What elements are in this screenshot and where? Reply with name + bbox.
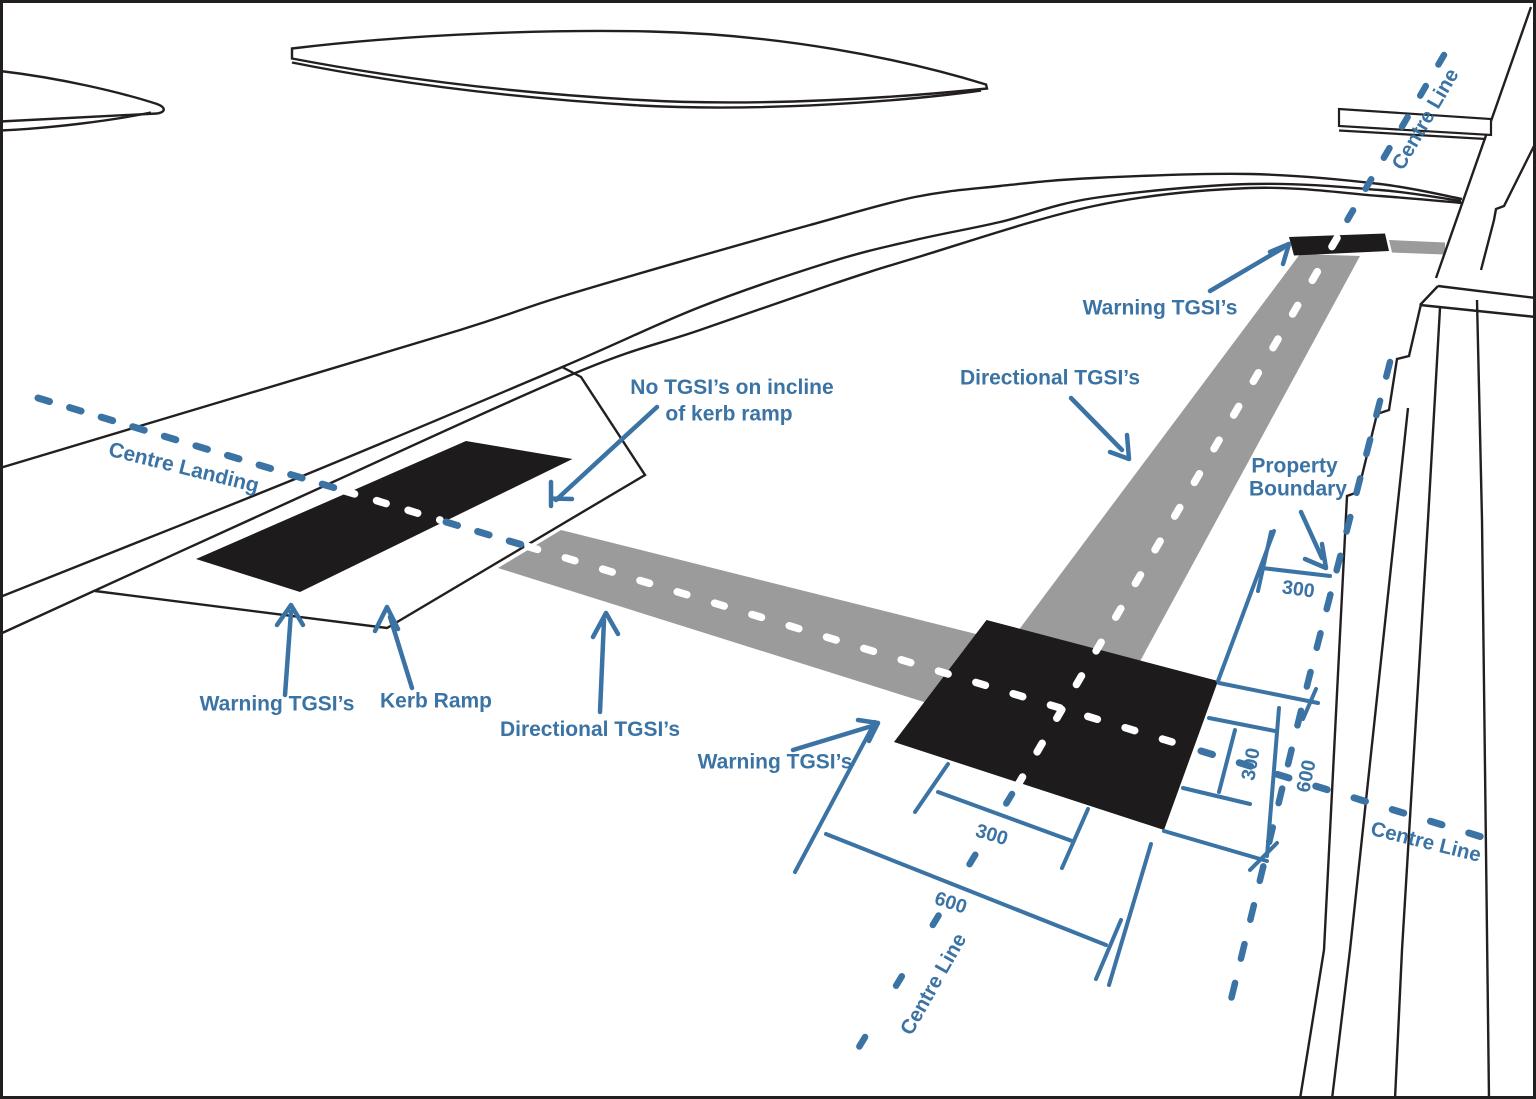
svg-text:Property: Property	[1251, 455, 1338, 478]
svg-text:Directional TGSI’s: Directional TGSI’s	[960, 367, 1140, 390]
svg-text:Warning TGSI’s: Warning TGSI’s	[200, 693, 355, 716]
svg-text:300: 300	[1281, 576, 1316, 602]
svg-text:No TGSI’s on incline: No TGSI’s on incline	[630, 376, 833, 399]
svg-text:Boundary: Boundary	[1249, 478, 1347, 501]
svg-text:Kerb Ramp: Kerb Ramp	[380, 690, 492, 713]
svg-text:Warning TGSI’s: Warning TGSI’s	[698, 751, 853, 774]
svg-text:of kerb ramp: of kerb ramp	[665, 403, 792, 426]
svg-text:Directional TGSI’s: Directional TGSI’s	[500, 718, 680, 741]
svg-text:Warning TGSI’s: Warning TGSI’s	[1083, 297, 1238, 320]
